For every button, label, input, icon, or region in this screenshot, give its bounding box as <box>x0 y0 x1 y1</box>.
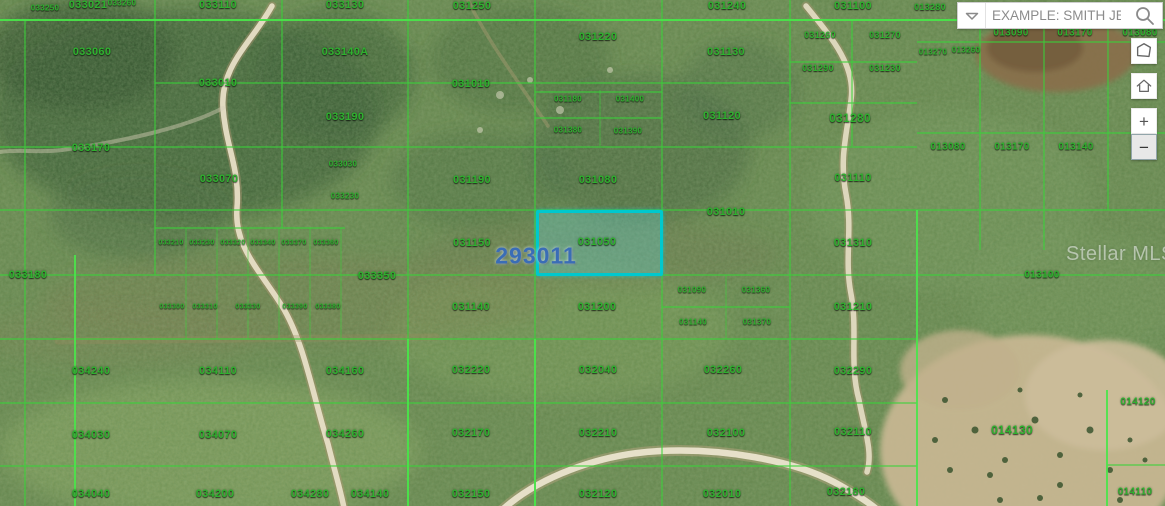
magnifier-icon <box>1133 4 1157 28</box>
stellar-mls-watermark: Stellar MLS <box>1066 243 1165 266</box>
zoom-out-button[interactable]: − <box>1131 134 1157 160</box>
measure-tool-button[interactable] <box>1131 38 1157 64</box>
search-input[interactable] <box>986 3 1127 28</box>
map-viewport[interactable]: 0332500330210332600331100331300312500312… <box>0 0 1165 506</box>
search-button[interactable] <box>1127 3 1162 28</box>
zoom-control: + − <box>1131 108 1157 160</box>
section-number-label: 293011 <box>495 243 576 270</box>
map-controls: + − <box>1131 38 1157 160</box>
zoom-in-button[interactable]: + <box>1131 108 1157 134</box>
home-icon <box>1134 76 1154 96</box>
search-dropdown-button[interactable] <box>958 3 986 28</box>
chevron-down-icon <box>959 3 985 29</box>
home-extent-button[interactable] <box>1131 73 1157 99</box>
search-bar <box>957 2 1163 29</box>
polygon-measure-icon <box>1134 41 1154 61</box>
